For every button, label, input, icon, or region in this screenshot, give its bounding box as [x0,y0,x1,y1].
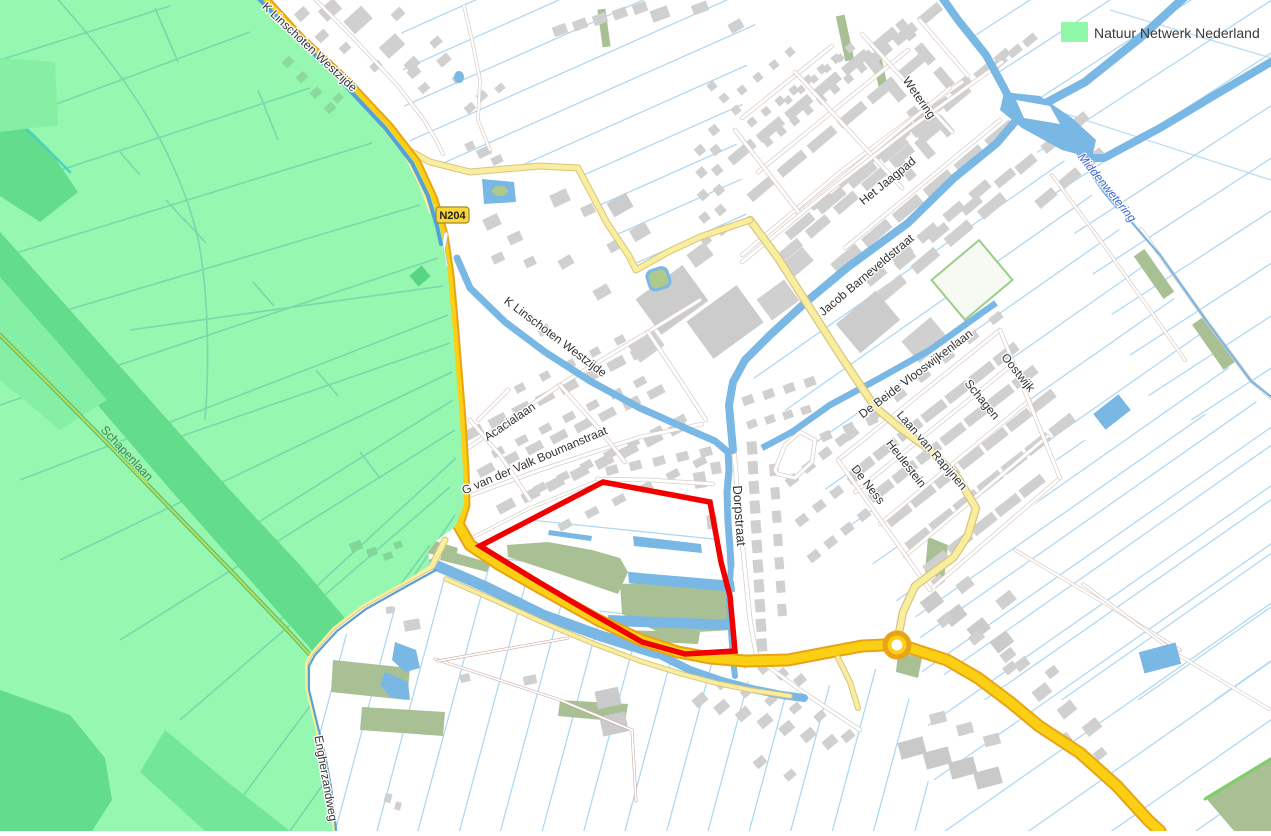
svg-text:Natuur Netwerk Nederland: Natuur Netwerk Nederland [1094,25,1260,41]
svg-text:N204: N204 [439,210,466,222]
